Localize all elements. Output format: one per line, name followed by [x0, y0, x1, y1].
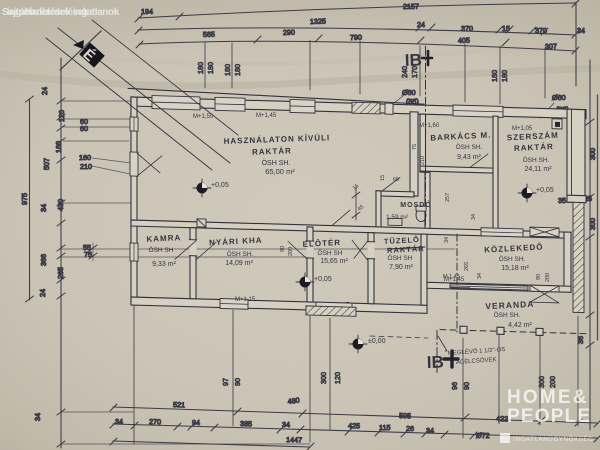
- svg-text:120: 120: [57, 110, 66, 122]
- svg-text:180: 180: [196, 62, 205, 74]
- svg-text:ÖSH SH.: ÖSH SH.: [494, 311, 521, 319]
- svg-text:34: 34: [426, 426, 434, 435]
- svg-text:INGATLANÜGYNÖKSÉG: INGATLANÜGYNÖKSÉG: [513, 436, 594, 443]
- svg-text:65: 65: [393, 177, 399, 183]
- svg-text:24: 24: [417, 20, 425, 29]
- svg-text:200: 200: [288, 247, 294, 256]
- svg-text:200: 200: [545, 273, 551, 282]
- svg-text:34: 34: [115, 417, 123, 426]
- svg-text:M+1,50: M+1,50: [193, 114, 214, 120]
- svg-text:M+1,45: M+1,45: [256, 113, 277, 119]
- svg-text:90: 90: [280, 246, 286, 252]
- svg-text:160: 160: [79, 153, 91, 162]
- svg-text:115: 115: [379, 423, 390, 432]
- svg-text:307: 307: [545, 42, 557, 51]
- svg-text:34: 34: [444, 237, 450, 243]
- svg-text:14,09 m²: 14,09 m²: [225, 260, 253, 267]
- svg-text:595: 595: [399, 411, 411, 420]
- svg-text:180: 180: [206, 62, 215, 74]
- svg-text:KAMRA: KAMRA: [146, 233, 181, 244]
- svg-text:90: 90: [233, 378, 242, 386]
- svg-text:65,00 m²: 65,00 m²: [265, 167, 295, 176]
- svg-text:+0,05: +0,05: [211, 182, 229, 189]
- svg-text:90: 90: [536, 274, 542, 280]
- svg-text:120: 120: [333, 372, 342, 384]
- svg-text:210: 210: [80, 162, 92, 171]
- svg-text:15,18 m²: 15,18 m²: [501, 265, 529, 272]
- svg-text:9,33 m²: 9,33 m²: [152, 261, 176, 268]
- svg-text:IB: IB: [426, 352, 444, 372]
- svg-text:34: 34: [577, 26, 585, 35]
- svg-text:60: 60: [80, 124, 88, 133]
- svg-text:9,43 m²: 9,43 m²: [457, 154, 481, 161]
- svg-text:ingatlanhirdetések: ingatlanhirdetések: [7, 7, 89, 18]
- svg-text:±0,00: ±0,00: [368, 338, 386, 345]
- svg-text:+0,05: +0,05: [536, 187, 554, 194]
- svg-text:257: 257: [445, 193, 451, 202]
- svg-text:790: 790: [350, 33, 362, 42]
- svg-text:180: 180: [500, 70, 509, 82]
- svg-text:34: 34: [39, 204, 48, 212]
- svg-text:34: 34: [471, 214, 477, 220]
- svg-text:97: 97: [221, 378, 230, 386]
- svg-text:M+1,15: M+1,15: [235, 297, 256, 303]
- svg-text:180: 180: [233, 64, 242, 76]
- svg-text:+0,05: +0,05: [314, 276, 332, 283]
- svg-text:34: 34: [282, 420, 290, 429]
- svg-text:300: 300: [588, 148, 597, 160]
- svg-text:370: 370: [461, 24, 473, 33]
- svg-text:ÖSH SH: ÖSH SH: [388, 254, 413, 262]
- svg-text:ÖSH SH.: ÖSH SH.: [262, 159, 291, 167]
- svg-text:430: 430: [56, 199, 65, 211]
- svg-text:366: 366: [39, 254, 48, 266]
- svg-text:1325: 1325: [310, 16, 326, 26]
- svg-text:4,42 m²: 4,42 m²: [508, 322, 532, 329]
- svg-text:507: 507: [42, 158, 51, 170]
- svg-text:MOSDÓ: MOSDÓ: [400, 200, 431, 209]
- svg-text:7,90 m²: 7,90 m²: [389, 264, 413, 271]
- svg-text:480: 480: [287, 395, 300, 406]
- svg-text:265: 265: [56, 267, 65, 279]
- svg-text:300: 300: [588, 218, 597, 230]
- svg-text:300: 300: [319, 372, 328, 384]
- svg-text:ÖSH SH.: ÖSH SH.: [227, 250, 254, 258]
- svg-text:Ø80: Ø80: [552, 93, 566, 102]
- svg-text:1,59 m²: 1,59 m²: [386, 214, 409, 221]
- svg-text:15,65 m²: 15,65 m²: [320, 258, 348, 265]
- svg-text:24: 24: [38, 289, 47, 297]
- svg-text:34: 34: [33, 413, 42, 421]
- svg-text:96: 96: [450, 382, 459, 390]
- svg-text:290: 290: [283, 28, 295, 37]
- svg-text:34: 34: [477, 273, 483, 279]
- svg-text:405: 405: [458, 36, 470, 45]
- svg-text:210: 210: [420, 156, 426, 165]
- svg-text:425: 425: [348, 421, 360, 430]
- svg-text:194: 194: [141, 7, 153, 16]
- svg-text:975: 975: [20, 193, 29, 205]
- svg-text:265: 265: [464, 262, 470, 271]
- svg-text:ÖSH SH.: ÖSH SH.: [523, 156, 550, 164]
- svg-text:2157: 2157: [403, 2, 419, 11]
- svg-text:24: 24: [40, 87, 49, 95]
- svg-text:ÖSH SH: ÖSH SH: [149, 246, 174, 254]
- svg-text:26: 26: [406, 424, 414, 433]
- svg-text:Ø72: Ø72: [476, 431, 490, 440]
- svg-text:75: 75: [412, 144, 418, 150]
- svg-text:Ø80: Ø80: [402, 88, 416, 97]
- svg-text:521: 521: [173, 400, 185, 409]
- svg-text:M+1,60: M+1,60: [419, 123, 440, 129]
- svg-text:565: 565: [203, 30, 215, 39]
- svg-text:1447: 1447: [286, 435, 302, 445]
- svg-text:36: 36: [576, 336, 585, 344]
- svg-text:24,11 m²: 24,11 m²: [524, 166, 552, 173]
- svg-text:HOME&: HOME&: [507, 387, 589, 408]
- svg-text:ÖSH SH: ÖSH SH: [318, 249, 343, 257]
- svg-text:180: 180: [490, 70, 499, 82]
- svg-text:160: 160: [54, 141, 63, 153]
- svg-text:PEOPLE: PEOPLE: [507, 406, 591, 427]
- svg-text:270: 270: [149, 417, 161, 426]
- svg-text:35: 35: [558, 196, 566, 205]
- svg-text:94: 94: [192, 418, 200, 427]
- svg-text:M.1,45: M.1,45: [443, 274, 460, 280]
- svg-text:15: 15: [502, 24, 510, 33]
- svg-text:385: 385: [240, 419, 252, 428]
- svg-text:RAKTÁR: RAKTÁR: [252, 146, 292, 156]
- svg-text:ÖSH SH.: ÖSH SH.: [456, 143, 483, 151]
- svg-text:M+1,05: M+1,05: [512, 126, 533, 132]
- svg-text:15: 15: [380, 175, 386, 181]
- svg-text:180: 180: [223, 64, 232, 76]
- svg-text:90: 90: [462, 382, 471, 390]
- svg-text:75: 75: [84, 250, 92, 259]
- svg-text:ÖSH SH.: ÖSH SH.: [499, 255, 526, 263]
- svg-text:IB: IB: [404, 50, 422, 70]
- svg-text:370: 370: [535, 26, 547, 35]
